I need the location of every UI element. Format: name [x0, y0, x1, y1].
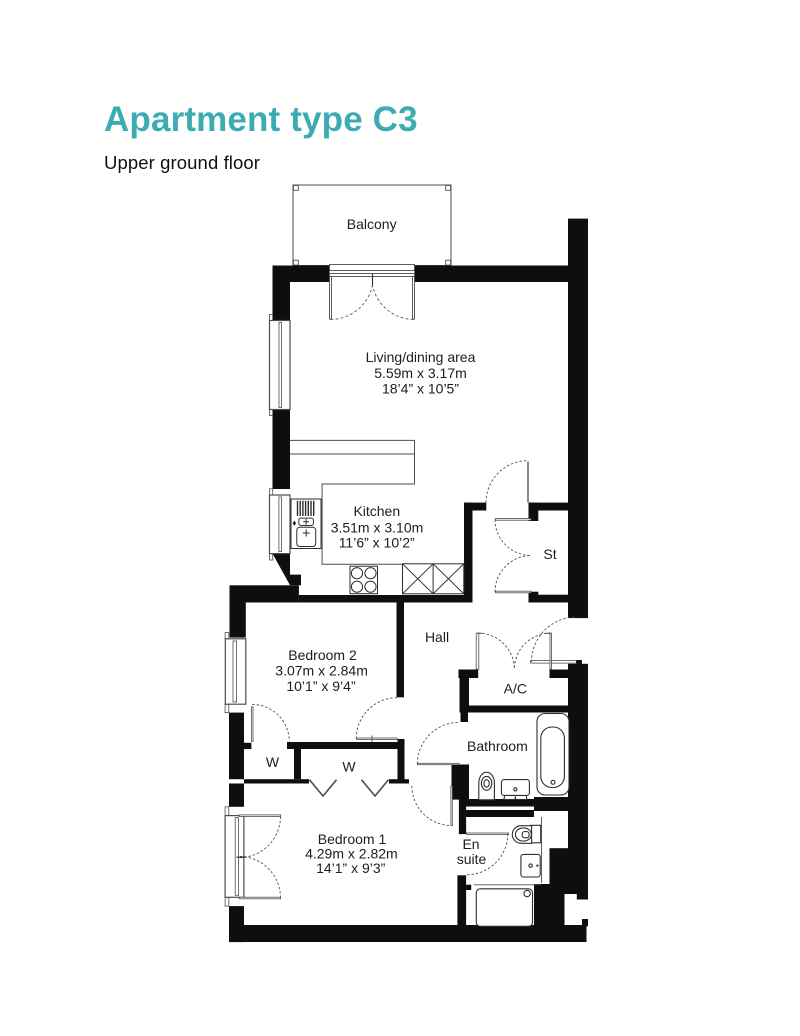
svg-text:14’1” x 9’3”: 14’1” x 9’3” [316, 860, 386, 876]
svg-text:En: En [462, 836, 479, 852]
svg-text:11’6” x 10’2”: 11’6” x 10’2” [339, 535, 415, 551]
svg-text:Bathroom: Bathroom [467, 738, 528, 754]
svg-text:Balcony: Balcony [347, 216, 397, 232]
svg-text:18’4” x 10’5”: 18’4” x 10’5” [382, 381, 459, 397]
svg-text:Living/dining area: Living/dining area [366, 349, 476, 365]
svg-text:Bedroom 2: Bedroom 2 [288, 647, 357, 663]
svg-text:W: W [266, 754, 280, 770]
svg-text:suite: suite [457, 851, 487, 867]
svg-text:St: St [543, 546, 556, 562]
svg-text:3.07m x 2.84m: 3.07m x 2.84m [275, 663, 368, 679]
svg-text:Bedroom 1: Bedroom 1 [318, 831, 387, 847]
svg-text:A/C: A/C [504, 680, 527, 696]
svg-text:3.51m x 3.10m: 3.51m x 3.10m [331, 519, 424, 535]
svg-text:10’1” x 9’4”: 10’1” x 9’4” [286, 678, 356, 694]
svg-text:5.59m x 3.17m: 5.59m x 3.17m [374, 365, 467, 381]
svg-text:Hall: Hall [425, 629, 449, 645]
svg-text:W: W [342, 759, 356, 775]
svg-text:Kitchen: Kitchen [353, 503, 400, 519]
